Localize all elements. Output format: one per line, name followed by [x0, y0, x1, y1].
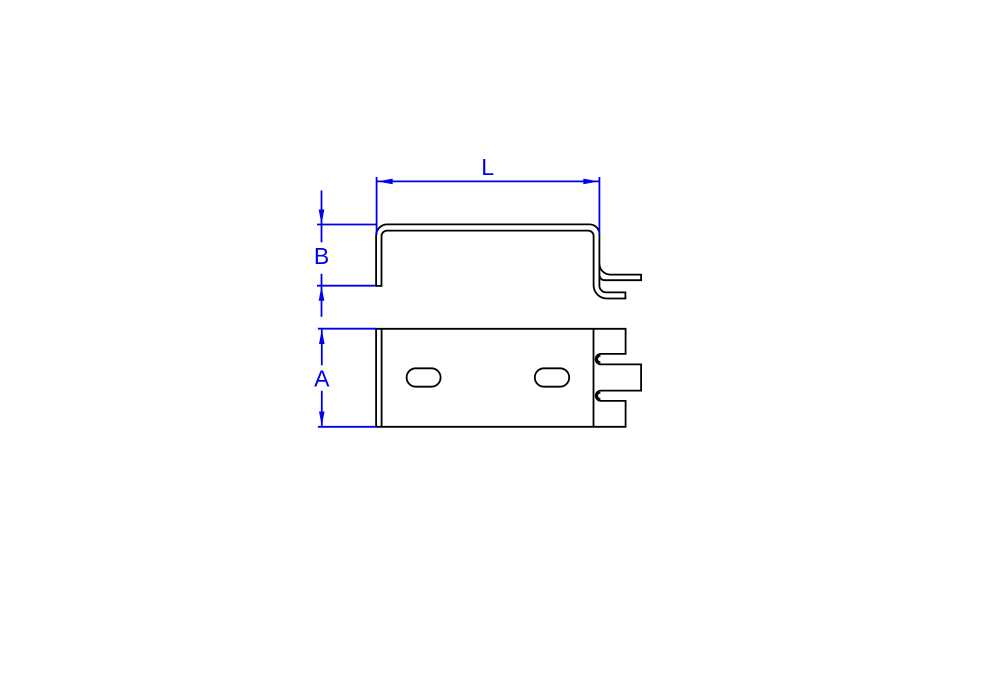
svg-text:A: A [314, 365, 330, 391]
svg-text:B: B [314, 243, 329, 269]
svg-text:L: L [481, 154, 494, 180]
